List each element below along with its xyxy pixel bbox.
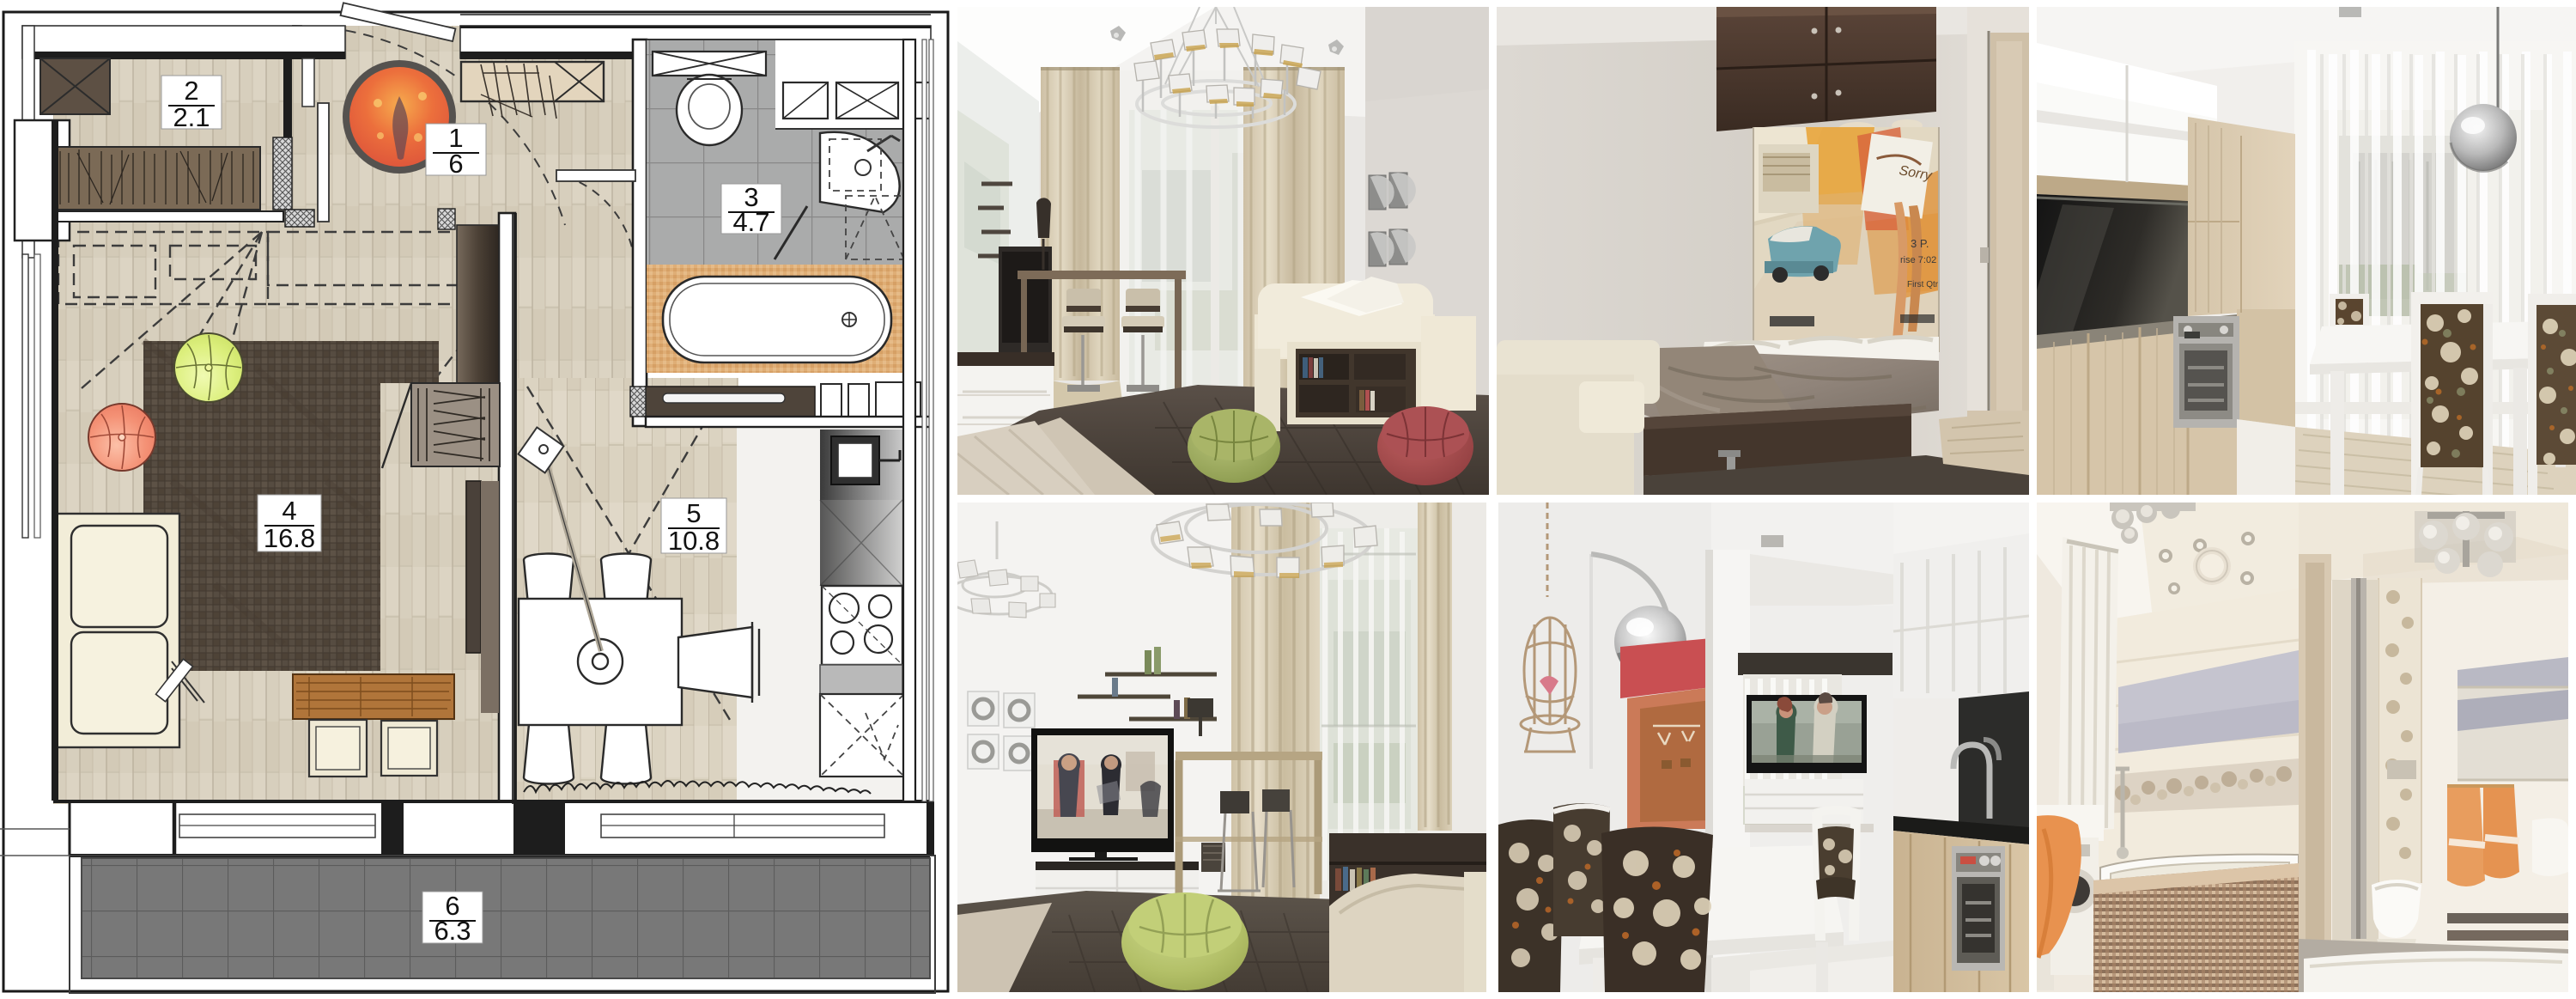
svg-text:3 P.: 3 P. <box>1911 237 1929 250</box>
svg-text:6: 6 <box>448 149 463 179</box>
svg-text:2.1: 2.1 <box>173 102 210 132</box>
svg-text:2: 2 <box>184 76 198 106</box>
svg-text:16.8: 16.8 <box>264 523 315 553</box>
svg-text:6.3: 6.3 <box>434 916 471 946</box>
svg-text:rise 7:02: rise 7:02 <box>1900 255 1936 265</box>
svg-text:5: 5 <box>686 498 701 528</box>
svg-text:First Qtr: First Qtr <box>1907 280 1939 289</box>
svg-text:4: 4 <box>282 496 296 526</box>
svg-text:10.8: 10.8 <box>668 526 720 556</box>
svg-text:4.7: 4.7 <box>732 207 769 237</box>
